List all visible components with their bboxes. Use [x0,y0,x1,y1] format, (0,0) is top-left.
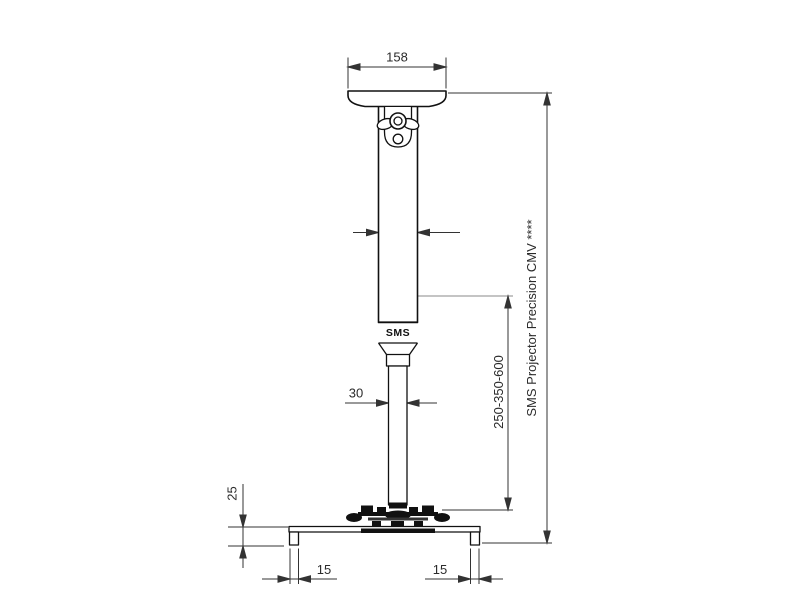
sms-logo: SMS [386,327,410,339]
dim-overall-height: SMS Projector Precision CMV **** [448,93,552,543]
arrow-right-icon [278,576,290,582]
arrow-left-icon [479,576,491,582]
arrow-right-icon [459,576,471,582]
bracket-hole-icon [393,134,403,144]
arrow-down-icon [505,498,511,510]
collar [387,355,410,367]
taper-left [379,343,387,355]
dim-label-30: 30 [349,386,363,401]
bolt-icon [414,521,423,526]
arrow-right-icon [434,64,446,70]
arrow-left-icon [299,576,311,582]
arrow-down-icon [544,531,550,543]
side-wing-left-icon [346,513,362,522]
arrow-up-icon [544,93,550,105]
right-foot [471,532,480,545]
left-foot [290,532,299,545]
bolt-icon [391,521,404,526]
bolt-icon [372,521,381,526]
arrow-up-icon [505,296,511,308]
bolt-icon [422,506,434,513]
dim-left-foot: 15 [262,549,337,585]
side-wing-right-icon [434,513,450,522]
bolt-icon [361,506,373,513]
dim-label-25: 25 [225,486,240,500]
arrow-left-icon [348,64,360,70]
dim-label-left-15: 15 [317,562,331,577]
mid-plate [368,518,428,521]
arrow-right-icon [377,400,389,406]
dim-label-right-15: 15 [433,562,447,577]
dim-right-foot: 15 [425,549,503,585]
projector-mount-drawing: 158 60 30 250-350-600 [0,0,800,600]
center-cap-icon [389,503,407,509]
dim-label-158: 158 [386,50,408,65]
arrow-down-icon [240,515,246,527]
dim-bracket-height: 25 [225,484,289,568]
taper-right [410,343,418,355]
arrow-right-icon [367,229,379,235]
ceiling-plate [348,91,446,107]
technical-drawing-page: 158 60 30 250-350-600 [0,0,800,600]
base-band [361,529,435,534]
arrow-up-icon [240,546,246,558]
arrow-left-icon [407,400,419,406]
dim-ceiling-plate-width: 158 [348,50,446,89]
dim-label-250-350-600: 250-350-600 [491,355,506,429]
telescopic-tube [389,366,408,505]
arrow-left-icon [418,229,430,235]
mount-geometry [289,91,480,545]
product-label: SMS Projector Precision CMV **** [524,219,539,416]
